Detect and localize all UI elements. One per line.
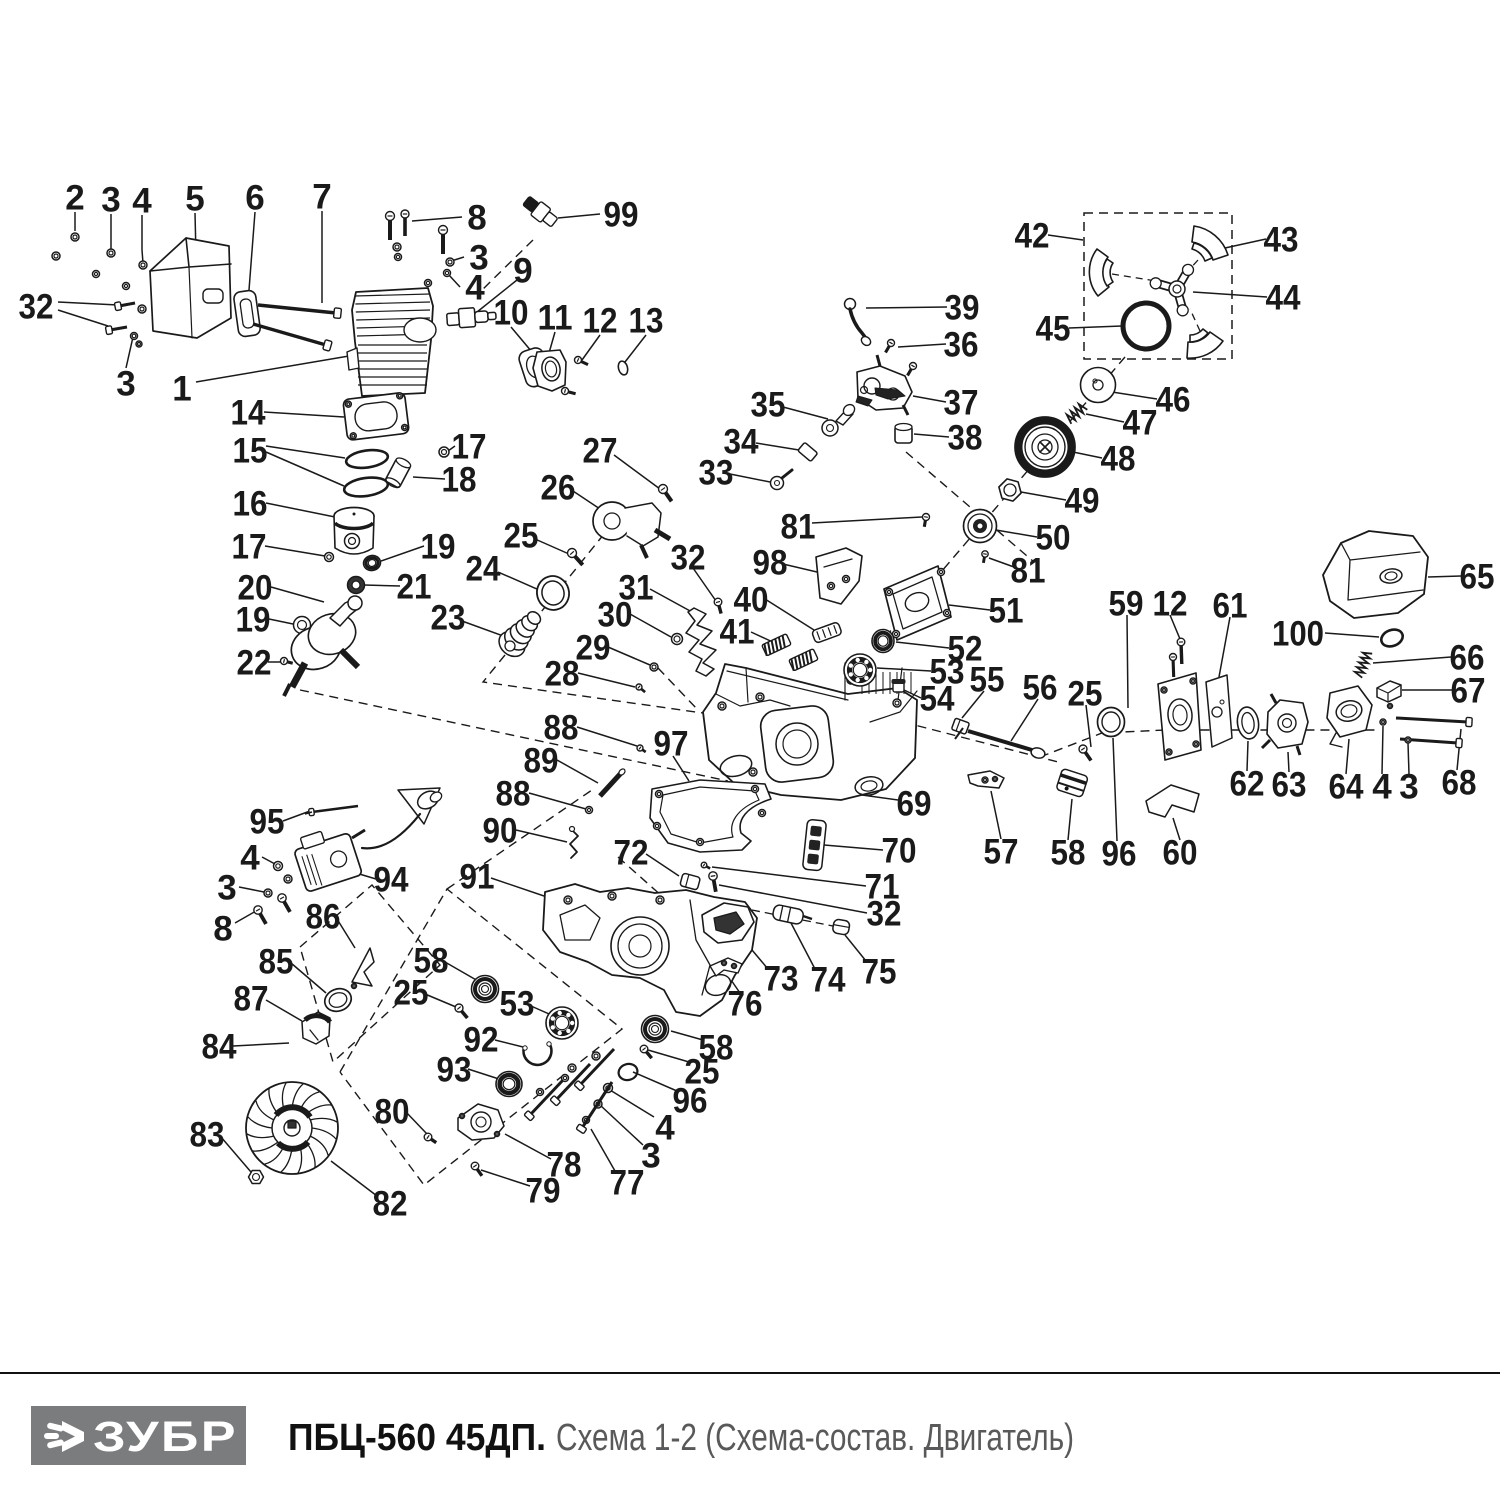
svg-text:5: 5 <box>185 180 204 219</box>
svg-text:48: 48 <box>1101 440 1136 479</box>
svg-text:60: 60 <box>1163 834 1198 873</box>
svg-text:38: 38 <box>948 419 983 458</box>
svg-text:85: 85 <box>259 943 294 982</box>
svg-text:12: 12 <box>1153 585 1188 624</box>
svg-text:61: 61 <box>1213 587 1248 626</box>
svg-text:87: 87 <box>234 980 269 1019</box>
svg-text:Схема 1-2 (Схема-состав. Двига: Схема 1-2 (Схема-состав. Двигатель) <box>556 1417 1074 1459</box>
svg-text:36: 36 <box>944 326 979 365</box>
svg-text:47: 47 <box>1123 404 1158 443</box>
svg-text:35: 35 <box>751 386 786 425</box>
svg-text:55: 55 <box>970 661 1005 700</box>
svg-text:69: 69 <box>897 785 932 824</box>
svg-text:51: 51 <box>989 592 1024 631</box>
svg-text:95: 95 <box>250 803 285 842</box>
svg-text:8: 8 <box>467 199 486 238</box>
svg-text:3: 3 <box>101 181 120 220</box>
svg-text:86: 86 <box>306 898 341 937</box>
svg-text:76: 76 <box>728 985 763 1024</box>
svg-text:72: 72 <box>614 834 649 873</box>
svg-text:82: 82 <box>373 1185 408 1224</box>
svg-text:62: 62 <box>1230 765 1265 804</box>
svg-text:37: 37 <box>944 384 979 423</box>
svg-text:4: 4 <box>132 182 152 221</box>
svg-text:96: 96 <box>1102 835 1137 874</box>
svg-text:6: 6 <box>245 179 264 218</box>
svg-text:32: 32 <box>671 539 706 578</box>
svg-text:57: 57 <box>984 833 1019 872</box>
svg-text:2: 2 <box>65 179 84 218</box>
svg-text:32: 32 <box>19 288 54 327</box>
svg-text:88: 88 <box>496 775 531 814</box>
svg-text:58: 58 <box>1051 834 1086 873</box>
svg-text:8: 8 <box>213 910 232 949</box>
svg-text:7: 7 <box>312 178 331 217</box>
svg-text:67: 67 <box>1451 672 1486 711</box>
svg-text:25: 25 <box>394 974 429 1013</box>
svg-text:91: 91 <box>460 858 495 897</box>
svg-text:19: 19 <box>236 601 271 640</box>
svg-text:1: 1 <box>172 370 191 409</box>
svg-text:34: 34 <box>724 423 759 462</box>
svg-text:23: 23 <box>431 599 466 638</box>
svg-text:3: 3 <box>116 365 135 404</box>
svg-text:50: 50 <box>1036 519 1071 558</box>
svg-text:54: 54 <box>920 680 955 719</box>
svg-text:63: 63 <box>1272 766 1307 805</box>
svg-text:94: 94 <box>374 861 409 900</box>
svg-text:53: 53 <box>500 985 535 1024</box>
svg-text:24: 24 <box>466 550 501 589</box>
svg-text:12: 12 <box>583 302 618 341</box>
svg-text:100: 100 <box>1272 615 1324 654</box>
svg-text:41: 41 <box>720 613 755 652</box>
svg-text:3: 3 <box>217 869 236 908</box>
svg-text:73: 73 <box>764 960 799 999</box>
svg-text:98: 98 <box>753 544 788 583</box>
svg-text:17: 17 <box>232 528 267 567</box>
svg-text:77: 77 <box>610 1164 645 1203</box>
svg-text:15: 15 <box>233 432 268 471</box>
svg-text:27: 27 <box>583 432 618 471</box>
svg-text:44: 44 <box>1266 279 1301 318</box>
svg-text:28: 28 <box>545 655 580 694</box>
svg-text:11: 11 <box>538 299 573 338</box>
svg-text:32: 32 <box>867 895 902 934</box>
svg-text:96: 96 <box>673 1082 708 1121</box>
svg-text:4: 4 <box>465 269 485 308</box>
svg-text:18: 18 <box>442 461 477 500</box>
svg-text:64: 64 <box>1329 768 1364 807</box>
svg-text:49: 49 <box>1065 482 1100 521</box>
svg-text:4: 4 <box>240 839 260 878</box>
svg-text:84: 84 <box>202 1028 237 1067</box>
svg-text:ПБЦ-560 45ДП.: ПБЦ-560 45ДП. <box>288 1417 546 1459</box>
svg-text:13: 13 <box>629 302 664 341</box>
svg-text:79: 79 <box>526 1172 561 1211</box>
svg-text:59: 59 <box>1109 585 1144 624</box>
svg-text:90: 90 <box>483 812 518 851</box>
svg-text:4: 4 <box>1372 768 1392 807</box>
svg-text:26: 26 <box>541 469 576 508</box>
svg-text:80: 80 <box>375 1093 410 1132</box>
svg-text:39: 39 <box>945 289 980 328</box>
svg-text:31: 31 <box>619 569 654 608</box>
svg-text:97: 97 <box>654 725 689 764</box>
svg-text:22: 22 <box>237 644 272 683</box>
svg-text:25: 25 <box>1068 675 1103 714</box>
svg-text:46: 46 <box>1156 381 1191 420</box>
svg-text:9: 9 <box>513 252 532 291</box>
svg-text:21: 21 <box>397 568 432 607</box>
svg-text:25: 25 <box>504 517 539 556</box>
svg-text:83: 83 <box>190 1116 225 1155</box>
svg-text:93: 93 <box>437 1051 472 1090</box>
svg-text:65: 65 <box>1460 558 1495 597</box>
svg-text:42: 42 <box>1015 217 1050 256</box>
svg-text:81: 81 <box>781 508 816 547</box>
svg-text:75: 75 <box>862 953 897 992</box>
svg-text:43: 43 <box>1264 221 1299 260</box>
svg-text:10: 10 <box>494 294 529 333</box>
svg-text:68: 68 <box>1442 764 1477 803</box>
svg-text:70: 70 <box>882 832 917 871</box>
svg-text:14: 14 <box>231 394 266 433</box>
svg-text:45: 45 <box>1036 310 1071 349</box>
svg-text:74: 74 <box>811 961 846 1000</box>
svg-text:99: 99 <box>604 196 639 235</box>
svg-text:ЗУБР: ЗУБР <box>93 1413 238 1461</box>
svg-text:19: 19 <box>421 528 456 567</box>
svg-text:16: 16 <box>233 485 268 524</box>
svg-text:56: 56 <box>1023 669 1058 708</box>
svg-text:3: 3 <box>1399 768 1418 807</box>
